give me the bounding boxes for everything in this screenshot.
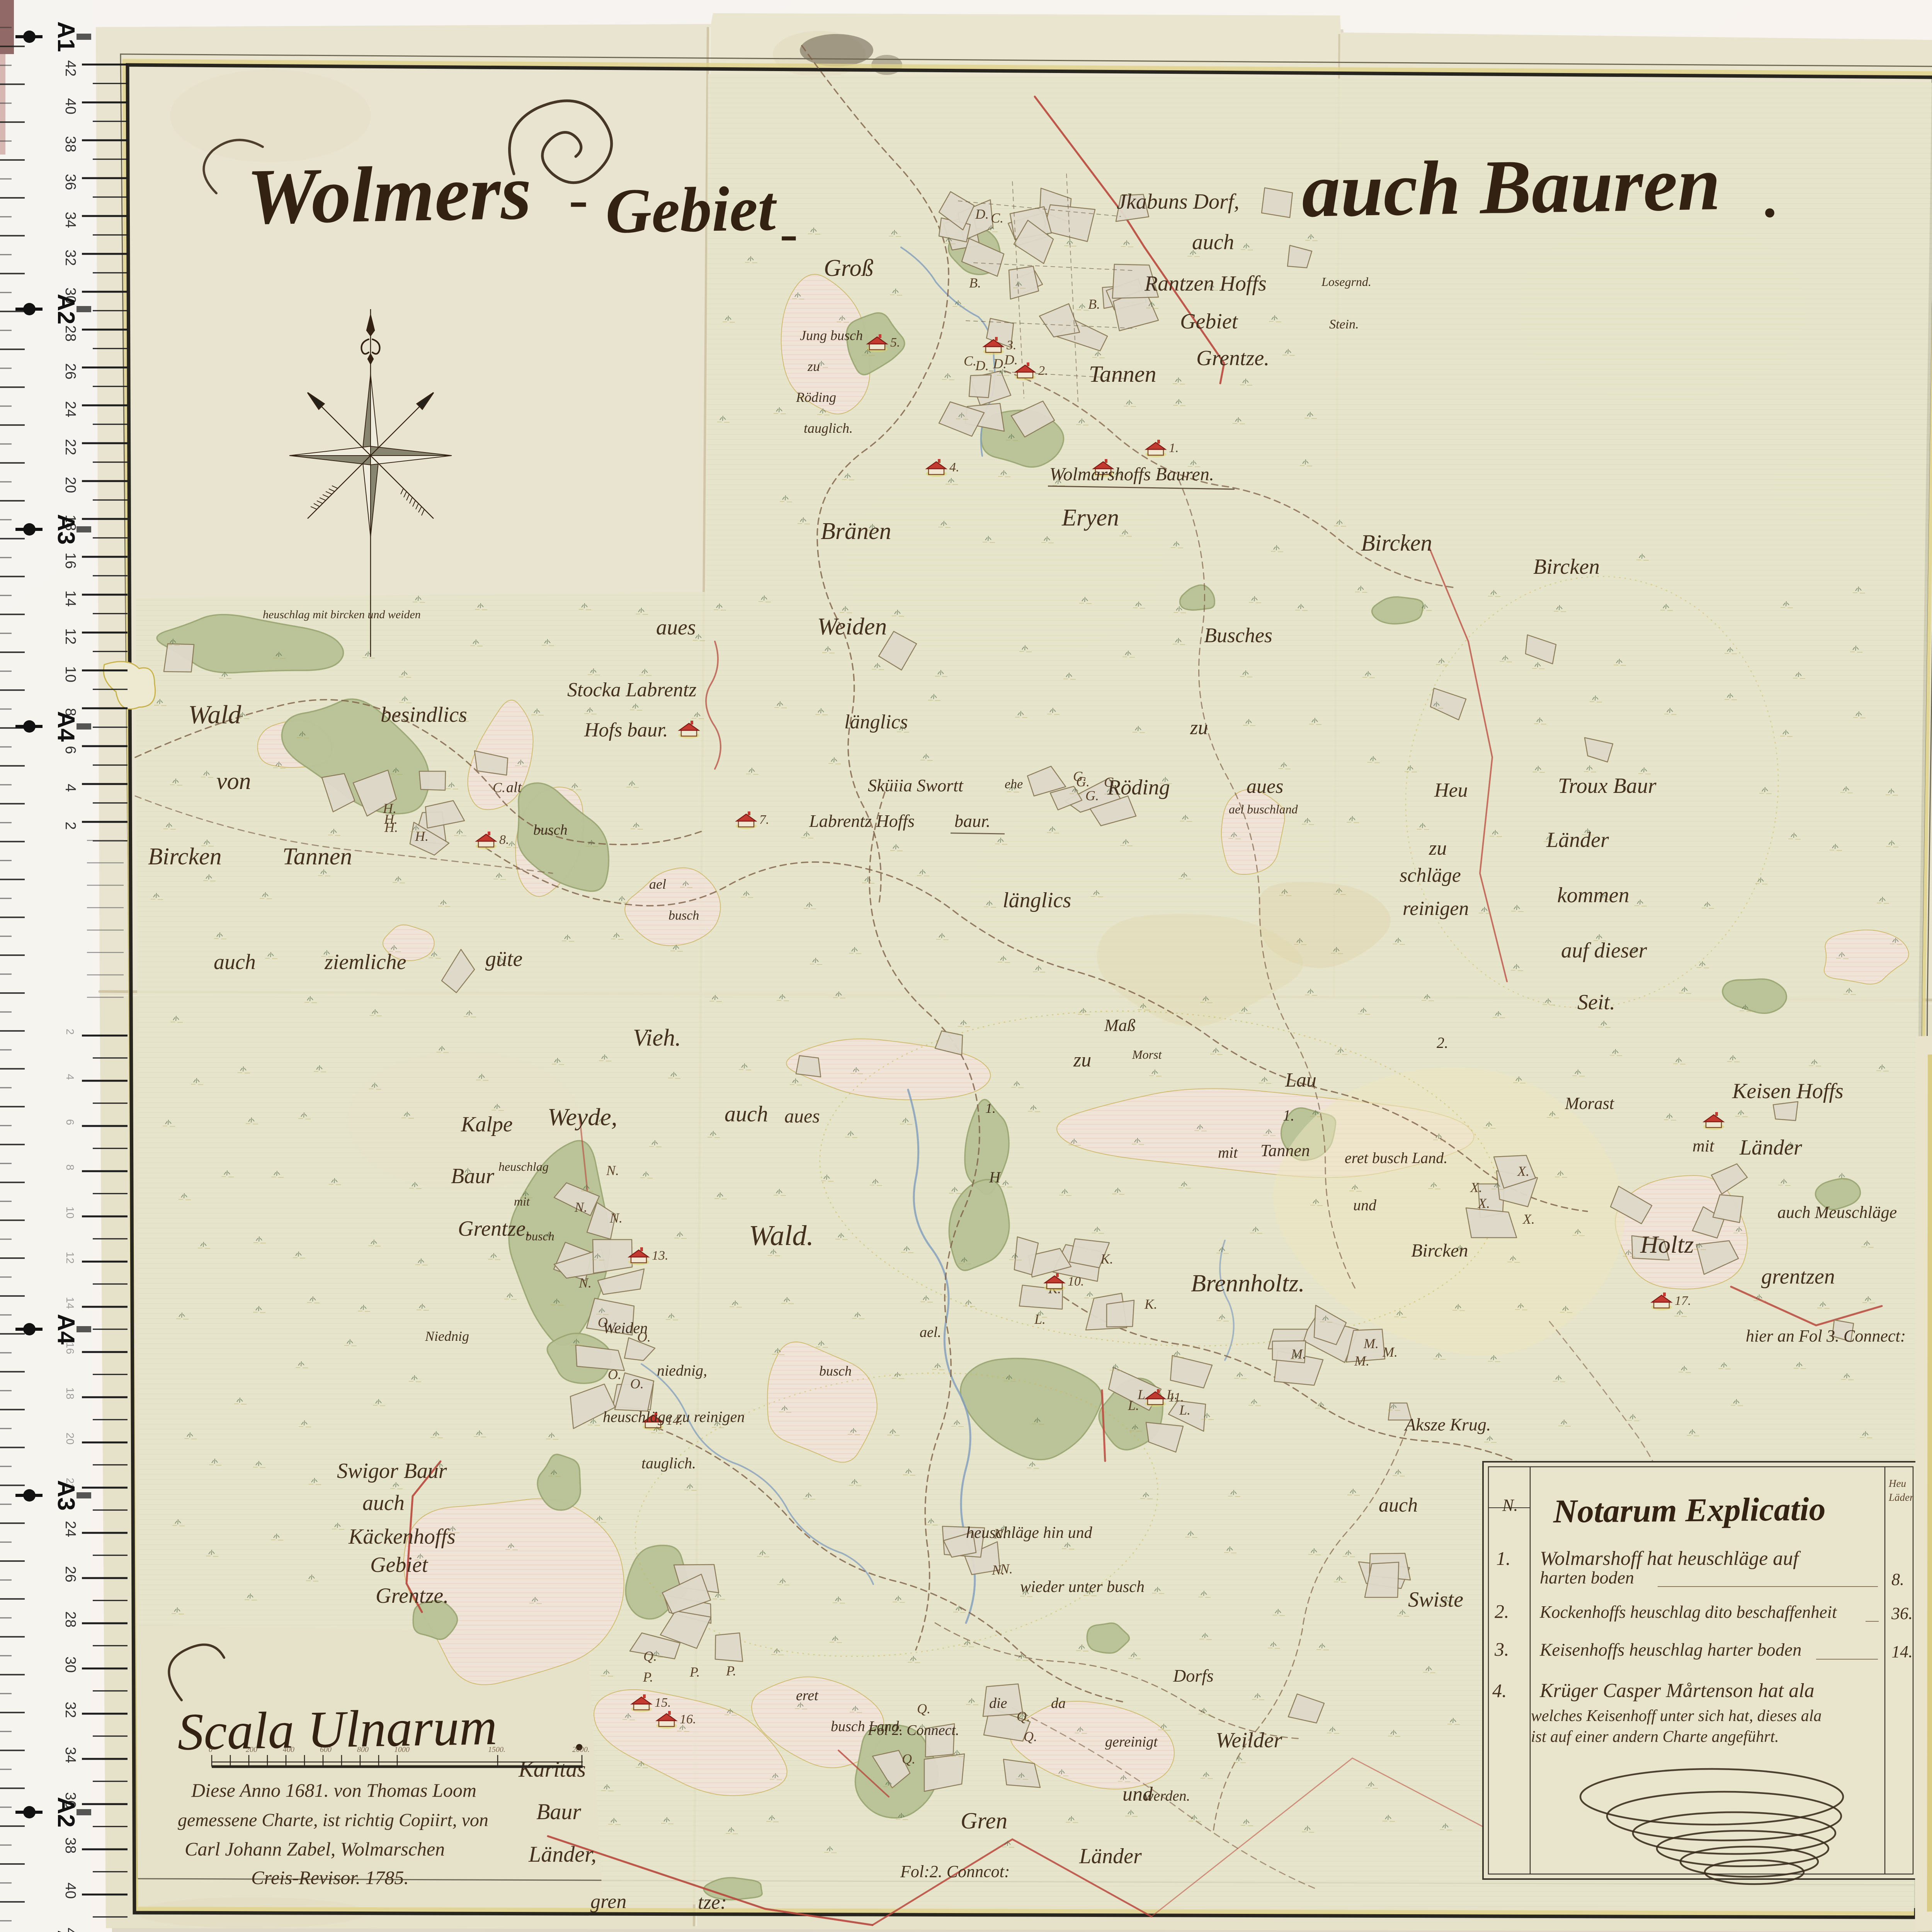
svg-text:Swiste: Swiste bbox=[1408, 1588, 1463, 1612]
svg-text:A4: A4 bbox=[53, 711, 79, 742]
svg-text:Weiden: Weiden bbox=[817, 614, 887, 640]
svg-text:42: 42 bbox=[62, 60, 78, 77]
svg-text:Käckenhoffs: Käckenhoffs bbox=[348, 1525, 456, 1549]
svg-text:aues: aues bbox=[784, 1105, 820, 1127]
svg-text:Heu: Heu bbox=[1434, 779, 1468, 801]
svg-text:Busches: Busches bbox=[1204, 624, 1272, 647]
svg-text:C.: C. bbox=[991, 210, 1003, 226]
svg-text:O.: O. bbox=[630, 1376, 644, 1391]
svg-text:zu: zu bbox=[1073, 1049, 1091, 1071]
svg-text:auch: auch bbox=[362, 1491, 405, 1515]
svg-text:heuschläge hin und: heuschläge hin und bbox=[966, 1524, 1093, 1542]
svg-text:N.: N. bbox=[574, 1199, 587, 1215]
svg-text:ael buschland: ael buschland bbox=[1229, 802, 1298, 816]
svg-text:Grentze.: Grentze. bbox=[1196, 346, 1269, 370]
svg-text:8.: 8. bbox=[1891, 1570, 1904, 1589]
svg-text:Gren: Gren bbox=[961, 1808, 1007, 1833]
svg-text:Tannen: Tannen bbox=[282, 844, 352, 870]
svg-text:Notarum Explicatio: Notarum Explicatio bbox=[1553, 1490, 1826, 1530]
svg-text:20: 20 bbox=[62, 477, 78, 493]
svg-text:auch: auch bbox=[214, 950, 256, 974]
svg-text:M.: M. bbox=[1363, 1336, 1379, 1351]
svg-text:heuschlag: heuschlag bbox=[498, 1160, 549, 1173]
svg-text:Weilder: Weilder bbox=[1216, 1728, 1282, 1752]
svg-text:K.: K. bbox=[1144, 1296, 1157, 1312]
svg-text:auch: auch bbox=[1379, 1494, 1418, 1516]
svg-text:Weiden: Weiden bbox=[603, 1319, 648, 1337]
svg-text:4.: 4. bbox=[949, 460, 959, 474]
svg-text:busch: busch bbox=[819, 1363, 852, 1379]
svg-text:P.: P. bbox=[643, 1669, 653, 1685]
svg-text:0: 0 bbox=[209, 1745, 213, 1754]
svg-text:Gebiet: Gebiet bbox=[1180, 310, 1238, 333]
svg-text:Lau: Lau bbox=[1285, 1069, 1316, 1091]
svg-text:Wald.: Wald. bbox=[749, 1220, 814, 1252]
svg-text:zu: zu bbox=[1429, 837, 1447, 859]
svg-text:gemessene Charte, ist richtig: gemessene Charte, ist richtig Copiirt, v… bbox=[178, 1810, 488, 1830]
svg-text:20: 20 bbox=[64, 1432, 76, 1444]
svg-text:tze:: tze: bbox=[698, 1891, 727, 1913]
svg-text:Stein.: Stein. bbox=[1329, 317, 1359, 332]
svg-text:2.: 2. bbox=[1495, 1600, 1509, 1622]
svg-text:tauglich.: tauglich. bbox=[641, 1454, 696, 1472]
svg-text:14.: 14. bbox=[1891, 1642, 1913, 1661]
svg-text:güte: güte bbox=[485, 947, 522, 971]
svg-text:ehe: ehe bbox=[1005, 777, 1023, 791]
svg-text:400: 400 bbox=[283, 1745, 294, 1754]
svg-text:A2: A2 bbox=[53, 1797, 79, 1827]
svg-text:besindlics: besindlics bbox=[381, 703, 467, 727]
svg-text:Q.: Q. bbox=[643, 1648, 657, 1664]
svg-text:X.: X. bbox=[1522, 1211, 1535, 1227]
svg-text:17.: 17. bbox=[1675, 1294, 1691, 1308]
svg-text:4.: 4. bbox=[1492, 1680, 1507, 1701]
svg-text:Keisenhoffs heuschlag harter b: Keisenhoffs heuschlag harter boden bbox=[1539, 1640, 1802, 1660]
svg-text:Bränen: Bränen bbox=[821, 518, 891, 544]
svg-text:2.: 2. bbox=[1038, 364, 1048, 378]
svg-text:C.: C. bbox=[493, 780, 505, 795]
svg-text:Röding: Röding bbox=[1107, 776, 1170, 799]
svg-text:13.: 13. bbox=[652, 1248, 668, 1263]
svg-text:harten boden: harten boden bbox=[1540, 1568, 1634, 1587]
svg-text:36: 36 bbox=[62, 174, 78, 190]
svg-text:40: 40 bbox=[62, 1883, 78, 1899]
svg-text:ael.: ael. bbox=[920, 1324, 941, 1340]
svg-text:Läder: Läder bbox=[1888, 1492, 1914, 1503]
svg-text:aues: aues bbox=[656, 616, 696, 639]
svg-text:da: da bbox=[1051, 1695, 1066, 1711]
svg-text:11.: 11. bbox=[1168, 1390, 1184, 1405]
svg-text:3.: 3. bbox=[1006, 338, 1017, 352]
svg-text:18: 18 bbox=[64, 1387, 76, 1399]
svg-text:4: 4 bbox=[64, 1074, 76, 1080]
svg-text:2000.: 2000. bbox=[572, 1745, 590, 1754]
svg-text:aues: aues bbox=[1247, 776, 1283, 798]
svg-text:12: 12 bbox=[62, 628, 78, 645]
svg-text:32: 32 bbox=[62, 250, 78, 266]
svg-text:Bircken: Bircken bbox=[1361, 530, 1432, 556]
svg-text:A1: A1 bbox=[53, 21, 79, 52]
svg-text:30: 30 bbox=[62, 1656, 78, 1673]
svg-text:Scala Ulnarum: Scala Ulnarum bbox=[177, 1698, 498, 1761]
svg-text:A4: A4 bbox=[53, 1314, 79, 1345]
svg-text:mit: mit bbox=[1692, 1136, 1715, 1155]
svg-text:24: 24 bbox=[62, 401, 78, 417]
svg-text:Sküiia Swortt: Sküiia Swortt bbox=[868, 776, 964, 795]
svg-text:C.: C. bbox=[964, 353, 976, 369]
svg-text:busch Land.: busch Land. bbox=[831, 1718, 903, 1735]
svg-text:Aksze Krug.: Aksze Krug. bbox=[1404, 1415, 1491, 1434]
svg-text:auch Meuschläge: auch Meuschläge bbox=[1777, 1203, 1897, 1222]
svg-text:15.: 15. bbox=[655, 1696, 671, 1710]
svg-text:B.: B. bbox=[969, 275, 981, 291]
svg-text:16.: 16. bbox=[680, 1712, 696, 1726]
svg-text:Losegrnd.: Losegrnd. bbox=[1321, 275, 1371, 289]
svg-text:6: 6 bbox=[64, 1119, 76, 1125]
svg-text:grentzen: grentzen bbox=[1761, 1265, 1835, 1289]
svg-text:mit: mit bbox=[514, 1194, 530, 1208]
svg-text:Bircken: Bircken bbox=[1411, 1240, 1468, 1261]
svg-text:7.: 7. bbox=[759, 813, 769, 827]
svg-text:O.: O. bbox=[608, 1367, 621, 1382]
svg-text:auf dieser: auf dieser bbox=[1561, 939, 1647, 963]
svg-text:L.: L. bbox=[1034, 1311, 1046, 1327]
svg-text:ziemliche: ziemliche bbox=[324, 950, 406, 974]
svg-text:Stocka Labrentz: Stocka Labrentz bbox=[567, 679, 697, 701]
svg-text:200: 200 bbox=[246, 1745, 257, 1754]
svg-text:Brennholtz.: Brennholtz. bbox=[1191, 1269, 1305, 1297]
svg-text:werden.: werden. bbox=[1144, 1788, 1190, 1804]
svg-text:X.: X. bbox=[1517, 1163, 1529, 1179]
svg-text:wieder unter busch: wieder unter busch bbox=[1020, 1578, 1145, 1596]
svg-text:Tannen: Tannen bbox=[1089, 361, 1156, 387]
svg-text:A3: A3 bbox=[53, 1480, 79, 1510]
svg-text:X.: X. bbox=[1469, 1180, 1482, 1195]
svg-text:Gebiet: Gebiet bbox=[605, 173, 777, 247]
svg-text:N.: N. bbox=[578, 1275, 592, 1291]
svg-text:H.: H. bbox=[384, 811, 398, 827]
svg-text:Troux Baur: Troux Baur bbox=[1558, 774, 1656, 798]
svg-text:26: 26 bbox=[62, 363, 78, 379]
svg-text:Länder,: Länder, bbox=[528, 1842, 597, 1867]
svg-text:800: 800 bbox=[357, 1745, 369, 1754]
svg-text:-: - bbox=[569, 167, 588, 231]
svg-text:länglics: länglics bbox=[1003, 888, 1071, 912]
svg-text:N.: N. bbox=[992, 1562, 1005, 1578]
svg-text:Bircken: Bircken bbox=[1533, 555, 1600, 579]
svg-text:L.: L. bbox=[1179, 1402, 1190, 1418]
svg-text:busch: busch bbox=[533, 822, 568, 838]
svg-text:niednig,: niednig, bbox=[657, 1362, 707, 1379]
svg-text:P.: P. bbox=[689, 1664, 700, 1680]
svg-text:Keisen Hoffs: Keisen Hoffs bbox=[1732, 1079, 1844, 1103]
svg-text:16: 16 bbox=[62, 553, 78, 569]
svg-text:ist auf einer andern Charte an: ist auf einer andern Charte angeführt. bbox=[1531, 1728, 1779, 1746]
svg-text:G.: G. bbox=[1076, 774, 1090, 789]
svg-text:600: 600 bbox=[320, 1745, 332, 1754]
svg-text:Q.: Q. bbox=[917, 1701, 930, 1716]
svg-text:Hofs baur.: Hofs baur. bbox=[584, 719, 668, 741]
svg-text:Kalpe: Kalpe bbox=[461, 1112, 513, 1136]
svg-text:P.: P. bbox=[726, 1663, 736, 1679]
svg-text:X.: X. bbox=[1477, 1196, 1490, 1211]
svg-text:D.: D. bbox=[975, 358, 989, 373]
svg-text:26: 26 bbox=[62, 1566, 78, 1582]
svg-text:zu: zu bbox=[1190, 717, 1208, 739]
svg-text:Niednig: Niednig bbox=[425, 1328, 469, 1344]
svg-text:.: . bbox=[1762, 148, 1781, 233]
svg-text:Morst: Morst bbox=[1132, 1048, 1162, 1061]
svg-text:eret: eret bbox=[796, 1687, 819, 1704]
svg-text:34: 34 bbox=[62, 1747, 78, 1763]
svg-text:Wolmers: Wolmers bbox=[246, 148, 532, 241]
svg-text:hier an Fol 3. Connect:: hier an Fol 3. Connect: bbox=[1746, 1327, 1906, 1345]
svg-text:1500.: 1500. bbox=[488, 1745, 505, 1754]
svg-text:N.: N. bbox=[1502, 1496, 1518, 1515]
svg-text:Eryen: Eryen bbox=[1061, 505, 1119, 531]
svg-text:Seit.: Seit. bbox=[1577, 990, 1615, 1014]
svg-text:gereinigt: gereinigt bbox=[1105, 1734, 1158, 1750]
svg-text:M.: M. bbox=[1354, 1353, 1369, 1369]
svg-text:länglics: länglics bbox=[844, 711, 908, 733]
svg-text:14: 14 bbox=[62, 590, 78, 607]
svg-text:Swigor Baur: Swigor Baur bbox=[337, 1459, 447, 1483]
svg-text:Rantzen Hoffs: Rantzen Hoffs bbox=[1144, 272, 1267, 296]
svg-text:2: 2 bbox=[62, 821, 78, 830]
svg-text:Vieh.: Vieh. bbox=[633, 1025, 681, 1051]
svg-text:1.: 1. bbox=[1496, 1548, 1511, 1569]
svg-text:28: 28 bbox=[62, 325, 78, 342]
svg-text:N.: N. bbox=[609, 1210, 622, 1226]
svg-text:B.: B. bbox=[1088, 296, 1100, 312]
svg-text:A3: A3 bbox=[53, 514, 79, 544]
svg-text:gren: gren bbox=[590, 1891, 626, 1913]
svg-text:14: 14 bbox=[64, 1297, 76, 1309]
svg-text:8: 8 bbox=[64, 1164, 76, 1170]
svg-text:Carl Johann Zabel, Wolmarschen: Carl Johann Zabel, Wolmarschen bbox=[185, 1838, 445, 1860]
svg-text:Maß: Maß bbox=[1104, 1016, 1136, 1035]
svg-text:D.: D. bbox=[993, 356, 1007, 371]
svg-text:busch: busch bbox=[668, 908, 699, 923]
svg-text:2.: 2. bbox=[1437, 1034, 1448, 1051]
svg-text:Länder: Länder bbox=[1546, 828, 1609, 852]
svg-text:auch: auch bbox=[724, 1101, 768, 1126]
svg-text:1.: 1. bbox=[1283, 1107, 1294, 1124]
svg-text:-: - bbox=[780, 203, 798, 263]
svg-text:welches Keisenhoff unter sich: welches Keisenhoff unter sich hat, diese… bbox=[1531, 1707, 1821, 1725]
svg-text:Q.: Q. bbox=[1024, 1729, 1037, 1744]
svg-text:mit: mit bbox=[1218, 1144, 1238, 1161]
svg-text:8.: 8. bbox=[499, 833, 509, 847]
svg-text:22: 22 bbox=[62, 439, 78, 455]
svg-text:Länder: Länder bbox=[1739, 1136, 1802, 1160]
svg-text:von: von bbox=[216, 768, 251, 794]
svg-text:Gebiet: Gebiet bbox=[370, 1553, 429, 1577]
svg-text:6: 6 bbox=[62, 746, 78, 754]
svg-text:38: 38 bbox=[62, 1837, 78, 1854]
svg-text:reinigen: reinigen bbox=[1403, 898, 1469, 920]
svg-text:Labrentz Hoffs: Labrentz Hoffs bbox=[809, 811, 915, 831]
svg-text:Weyde,: Weyde, bbox=[548, 1103, 617, 1131]
svg-text:1.: 1. bbox=[985, 1100, 996, 1116]
svg-text:36.: 36. bbox=[1891, 1604, 1913, 1623]
svg-text:D.: D. bbox=[975, 206, 989, 222]
svg-text:1.: 1. bbox=[1169, 441, 1179, 455]
svg-text:Grentze.: Grentze. bbox=[376, 1584, 449, 1608]
svg-text:Diese Anno 1681. von Thomas L: Diese Anno 1681. von Thomas Loom bbox=[191, 1779, 476, 1801]
svg-text:heuschlag mit bircken und weid: heuschlag mit bircken und weiden bbox=[263, 608, 421, 621]
svg-text:die: die bbox=[989, 1695, 1007, 1711]
svg-text:Länder: Länder bbox=[1079, 1844, 1142, 1868]
svg-text:40: 40 bbox=[62, 98, 78, 114]
svg-text:Baur: Baur bbox=[536, 1799, 581, 1824]
svg-text:G.: G. bbox=[1085, 788, 1099, 803]
svg-text:Bircken: Bircken bbox=[148, 844, 221, 870]
svg-text:Dorfs: Dorfs bbox=[1173, 1666, 1214, 1685]
svg-text:L.: L. bbox=[1128, 1398, 1139, 1413]
svg-text:Q.: Q. bbox=[902, 1751, 915, 1767]
svg-text:Jkabuns Dorf,: Jkabuns Dorf, bbox=[1117, 190, 1239, 214]
svg-text:4: 4 bbox=[62, 784, 78, 792]
svg-text:A1: A1 bbox=[53, 1930, 79, 1932]
svg-text:Kockenhoffs heuschlag dito bes: Kockenhoffs heuschlag dito beschaffenhei… bbox=[1539, 1602, 1837, 1622]
svg-text:heuschläge zu reinigen: heuschläge zu reinigen bbox=[603, 1408, 745, 1425]
svg-text:12: 12 bbox=[64, 1252, 76, 1264]
svg-text:auch: auch bbox=[1192, 230, 1234, 254]
svg-text:1000: 1000 bbox=[394, 1745, 410, 1754]
svg-text:baur.: baur. bbox=[954, 811, 990, 831]
svg-text:34: 34 bbox=[62, 212, 78, 228]
svg-text:Heu: Heu bbox=[1888, 1478, 1906, 1489]
svg-text:2: 2 bbox=[64, 1029, 76, 1035]
svg-text:schläge: schläge bbox=[1400, 864, 1461, 886]
svg-text:ael: ael bbox=[649, 876, 666, 892]
svg-text:Wald: Wald bbox=[188, 700, 241, 729]
svg-text:zu: zu bbox=[807, 359, 820, 374]
svg-text:5.: 5. bbox=[890, 335, 900, 350]
svg-text:auch Bauren: auch Bauren bbox=[1301, 141, 1721, 233]
svg-text:10: 10 bbox=[64, 1206, 76, 1218]
svg-text:Grentze.: Grentze. bbox=[458, 1217, 531, 1241]
svg-text:10: 10 bbox=[62, 666, 78, 682]
svg-text:Röding: Röding bbox=[796, 389, 836, 405]
svg-text:tauglich.: tauglich. bbox=[804, 420, 853, 436]
svg-text:Holtz: Holtz bbox=[1640, 1231, 1694, 1258]
svg-text:10.: 10. bbox=[1068, 1274, 1084, 1289]
svg-text:eret busch Land.: eret busch Land. bbox=[1345, 1149, 1447, 1167]
svg-text:Fol:2. Conncot:: Fol:2. Conncot: bbox=[900, 1862, 1010, 1881]
svg-text:K.: K. bbox=[1100, 1251, 1113, 1267]
svg-text:kommen: kommen bbox=[1557, 883, 1629, 907]
svg-text:H.: H. bbox=[415, 828, 429, 844]
svg-text:und: und bbox=[1353, 1196, 1377, 1214]
svg-text:Baur: Baur bbox=[451, 1164, 494, 1188]
svg-text:Groß: Groß bbox=[824, 255, 874, 281]
svg-text:Krüger Casper Mårtenson hat al: Krüger Casper Mårtenson hat ala bbox=[1539, 1680, 1815, 1702]
svg-text:Wolmarshoffs Bauren.: Wolmarshoffs Bauren. bbox=[1049, 464, 1214, 485]
svg-text:alt: alt bbox=[506, 779, 522, 796]
svg-text:A2: A2 bbox=[53, 294, 79, 324]
svg-text:busch: busch bbox=[526, 1229, 554, 1243]
svg-text:28: 28 bbox=[62, 1611, 78, 1628]
svg-text:H: H bbox=[989, 1168, 1001, 1186]
svg-text:38: 38 bbox=[62, 136, 78, 152]
svg-text:Q.: Q. bbox=[1017, 1709, 1030, 1724]
svg-text:32: 32 bbox=[62, 1702, 78, 1718]
svg-text:Morast: Morast bbox=[1565, 1094, 1615, 1113]
svg-text:M.: M. bbox=[1382, 1344, 1398, 1360]
svg-text:Tannen: Tannen bbox=[1260, 1141, 1310, 1160]
svg-text:Jung busch: Jung busch bbox=[800, 328, 863, 343]
svg-text:3.: 3. bbox=[1494, 1638, 1509, 1660]
svg-text:Creis-Revisor. 1785.: Creis-Revisor. 1785. bbox=[251, 1867, 409, 1888]
svg-text:24: 24 bbox=[62, 1521, 78, 1537]
svg-text:Wolmarshoff hat heuschläge auf: Wolmarshoff hat heuschläge auf bbox=[1540, 1548, 1801, 1570]
svg-text:N.: N. bbox=[606, 1163, 619, 1178]
